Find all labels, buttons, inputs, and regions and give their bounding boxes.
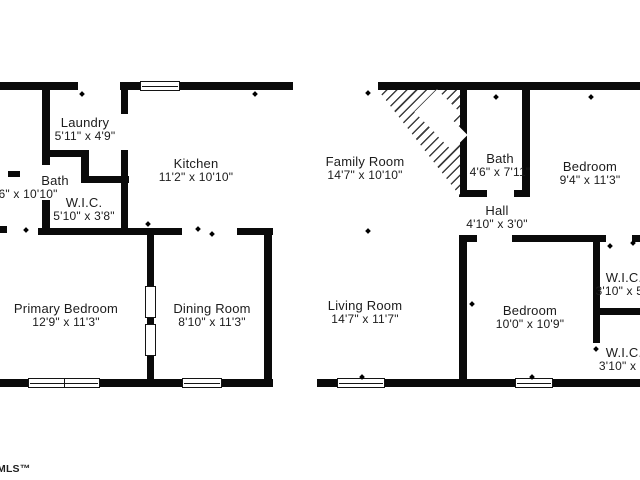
- door-panel: [145, 324, 156, 356]
- room-label-kitchen: Kitchen 11'2" x 10'10": [159, 157, 233, 184]
- room-label-primary-bedroom: Primary Bedroom 12'9" x 11'3": [14, 302, 118, 329]
- room-dimensions: 5'10" x 3'8": [53, 210, 115, 223]
- room-name: Living Room: [328, 299, 402, 313]
- dimension-tick: [209, 231, 215, 237]
- wall-segment: [264, 228, 272, 387]
- wall-segment: [8, 171, 20, 177]
- wall-segment: [38, 228, 182, 235]
- room-label-bath-right: Bath 4'6" x 7'11": [470, 152, 531, 179]
- room-dimensions: 4'6" x 7'11": [470, 166, 531, 179]
- room-label-laundry: Laundry 5'11" x 4'9": [55, 116, 116, 143]
- room-label-living-room: Living Room 14'7" x 11'7": [328, 299, 402, 326]
- room-label-bath-left: Bath: [41, 174, 69, 188]
- wall-segment: [121, 150, 128, 235]
- room-label-hall: Hall 4'10" x 3'0": [466, 204, 528, 231]
- wall-segment: [378, 82, 640, 90]
- wall-segment: [459, 235, 477, 242]
- room-name: Primary Bedroom: [14, 302, 118, 316]
- room-name: Bedroom: [496, 304, 564, 318]
- room-name: W.I.C.: [595, 271, 640, 285]
- room-dimensions: 4'10" x 3'0": [466, 218, 528, 231]
- room-dimensions: 14'7" x 11'7": [328, 313, 402, 326]
- door-panel: [145, 286, 156, 318]
- room-label-dining-room: Dining Room 8'10" x 11'3": [173, 302, 250, 329]
- dimension-tick: [23, 227, 29, 233]
- room-label-wic-upper-right: W.I.C. 3'10" x 5'1: [595, 271, 640, 298]
- dimension-tick: [365, 90, 371, 96]
- room-name: Dining Room: [173, 302, 250, 316]
- wall-segment: [459, 88, 467, 197]
- wall-segment: [522, 88, 530, 197]
- wall-segment: [121, 88, 128, 114]
- room-dimensions: 11'2" x 10'10": [159, 171, 233, 184]
- window: [140, 81, 180, 91]
- dimension-tick: [252, 91, 258, 97]
- room-name: W.I.C.: [599, 346, 640, 360]
- room-label-bedroom-bottom-right: Bedroom 10'0" x 10'9": [496, 304, 564, 331]
- room-dimensions: 12'9" x 11'3": [14, 316, 118, 329]
- room-dimensions: 5'11" x 4'9": [55, 130, 116, 143]
- window: [515, 378, 553, 388]
- window: [182, 378, 222, 388]
- window: [28, 378, 100, 388]
- room-dimensions: 3'10" x 4': [599, 360, 640, 373]
- dimension-tick: [145, 221, 151, 227]
- room-label-bedroom-top-right: Bedroom 9'4" x 11'3": [560, 160, 621, 187]
- dimension-tick: [195, 226, 201, 232]
- room-name: Hall: [466, 204, 528, 218]
- floor-plan: Laundry 5'11" x 4'9" Kitchen 11'2" x 10'…: [0, 0, 640, 480]
- dimension-tick: [469, 301, 475, 307]
- room-name: Bath: [470, 152, 531, 166]
- room-name: Laundry: [55, 116, 116, 130]
- wall-segment: [512, 235, 606, 242]
- room-dimensions: 3'10" x 5'1: [595, 285, 640, 298]
- room-name: Bedroom: [560, 160, 621, 174]
- wall-segment: [81, 176, 129, 183]
- room-label-wic-lower-right: W.I.C. 3'10" x 4': [599, 346, 640, 373]
- wall-segment: [593, 308, 640, 315]
- dimension-tick: [79, 91, 85, 97]
- wall-segment: [0, 226, 7, 233]
- dimension-tick: [588, 94, 594, 100]
- room-dimensions: 10'0" x 10'9": [496, 318, 564, 331]
- room-dimensions: '6" x 10'10": [0, 187, 58, 201]
- wall-segment: [514, 190, 530, 197]
- room-dimensions: 9'4" x 11'3": [560, 174, 621, 187]
- room-name: Bath: [41, 174, 69, 188]
- room-label-wic-left: W.I.C. 5'10" x 3'8": [53, 196, 115, 223]
- wall-segment: [459, 235, 467, 387]
- room-dimensions: 14'7" x 10'10": [326, 169, 405, 182]
- wall-segment: [0, 82, 78, 90]
- room-name: Family Room: [326, 155, 405, 169]
- room-label-family-room: Family Room 14'7" x 10'10": [326, 155, 405, 182]
- dimension-tick: [365, 228, 371, 234]
- dimension-tick: [493, 94, 499, 100]
- room-name: Kitchen: [159, 157, 233, 171]
- room-name: W.I.C.: [53, 196, 115, 210]
- room-dimensions: 8'10" x 11'3": [173, 316, 250, 329]
- wall-segment: [459, 190, 487, 197]
- mls-watermark: MLS™: [0, 463, 30, 475]
- dimension-tick: [607, 243, 613, 249]
